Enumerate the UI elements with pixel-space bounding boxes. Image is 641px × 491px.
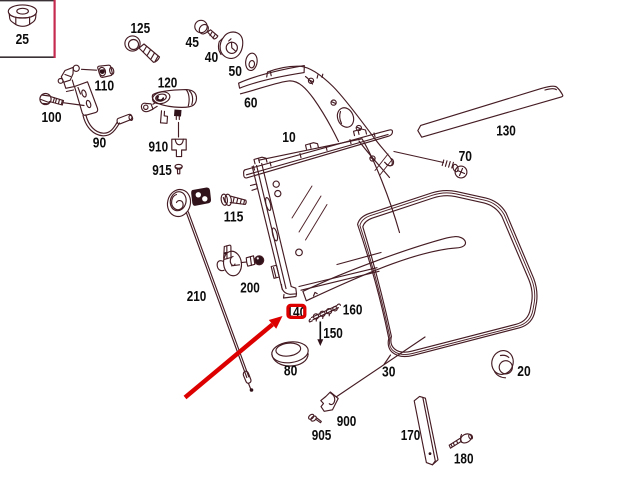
svg-text:210: 210: [187, 288, 207, 305]
svg-text:10: 10: [282, 129, 295, 146]
svg-text:130: 130: [496, 122, 516, 139]
svg-text:120: 120: [158, 75, 178, 92]
svg-text:90: 90: [93, 135, 106, 152]
svg-text:25: 25: [16, 31, 29, 48]
svg-text:915: 915: [152, 162, 172, 179]
svg-text:60: 60: [244, 95, 257, 112]
svg-text:160: 160: [343, 301, 363, 318]
svg-text:115: 115: [224, 209, 244, 226]
svg-text:170: 170: [401, 427, 421, 444]
svg-text:70: 70: [459, 148, 472, 165]
svg-text:45: 45: [186, 34, 199, 51]
svg-text:150: 150: [323, 325, 343, 342]
svg-text:50: 50: [229, 63, 242, 80]
svg-text:125: 125: [131, 20, 151, 37]
svg-text:40: 40: [205, 49, 218, 66]
svg-text:905: 905: [312, 427, 332, 444]
svg-text:20: 20: [517, 363, 530, 380]
svg-text:910: 910: [149, 139, 169, 156]
svg-text:80: 80: [284, 362, 297, 379]
svg-text:180: 180: [454, 450, 474, 467]
svg-text:200: 200: [240, 279, 260, 296]
svg-text:100: 100: [42, 109, 62, 126]
svg-text:900: 900: [337, 413, 357, 430]
svg-text:30: 30: [382, 363, 395, 380]
svg-text:110: 110: [95, 78, 115, 95]
